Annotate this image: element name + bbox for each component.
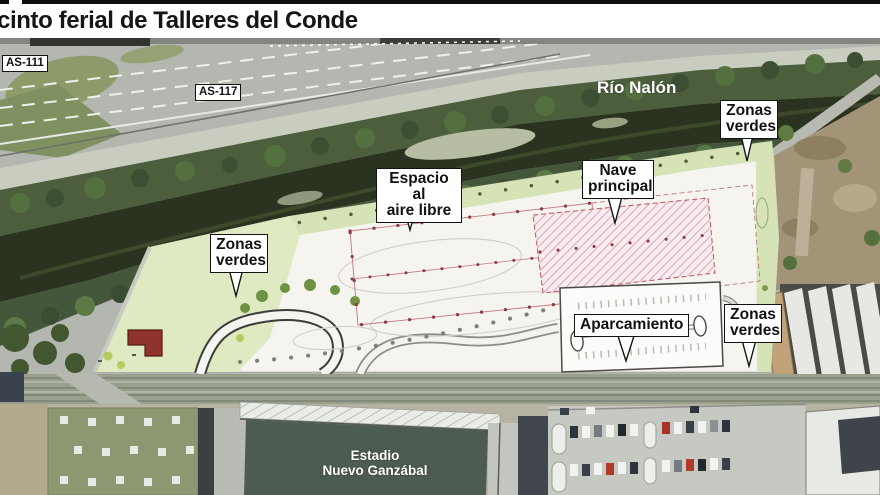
road-label-as117-text: AS-117 (199, 86, 237, 99)
right-building (806, 406, 880, 495)
stadium-label: Estadio Nuevo Ganzábal (300, 448, 450, 478)
callout-espacio-aire-libre: Espacio al aire libre (376, 168, 462, 223)
dark-building (518, 416, 548, 495)
callout-aparcamiento: Aparcamiento (574, 314, 689, 337)
callout-zonas-verdes-top-right: Zonas verdes (720, 100, 778, 139)
top-black-bar (0, 0, 880, 4)
road-label-as111: AS-111 (2, 55, 48, 72)
infographic: cinto ferial de Talleres del Conde (0, 0, 880, 495)
callout-zonas-verdes-bottom-right: Zonas verdes (724, 304, 782, 343)
road-label-as117: AS-117 (195, 84, 241, 101)
parking-lot (548, 404, 806, 495)
river-label: Río Nalón (597, 78, 676, 98)
road-label-as111-text: AS-111 (6, 57, 44, 70)
callout-zonas-verdes-left: Zonas verdes (210, 234, 268, 273)
railway-corridor (0, 374, 880, 404)
page-title: cinto ferial de Talleres del Conde (0, 7, 358, 35)
top-bar-notch (9, 0, 22, 4)
small-dark-building (0, 372, 24, 402)
warehouse-roof (48, 408, 198, 495)
river-label-text: Río Nalón (597, 78, 676, 98)
callout-nave-principal: Nave principal (582, 160, 654, 199)
